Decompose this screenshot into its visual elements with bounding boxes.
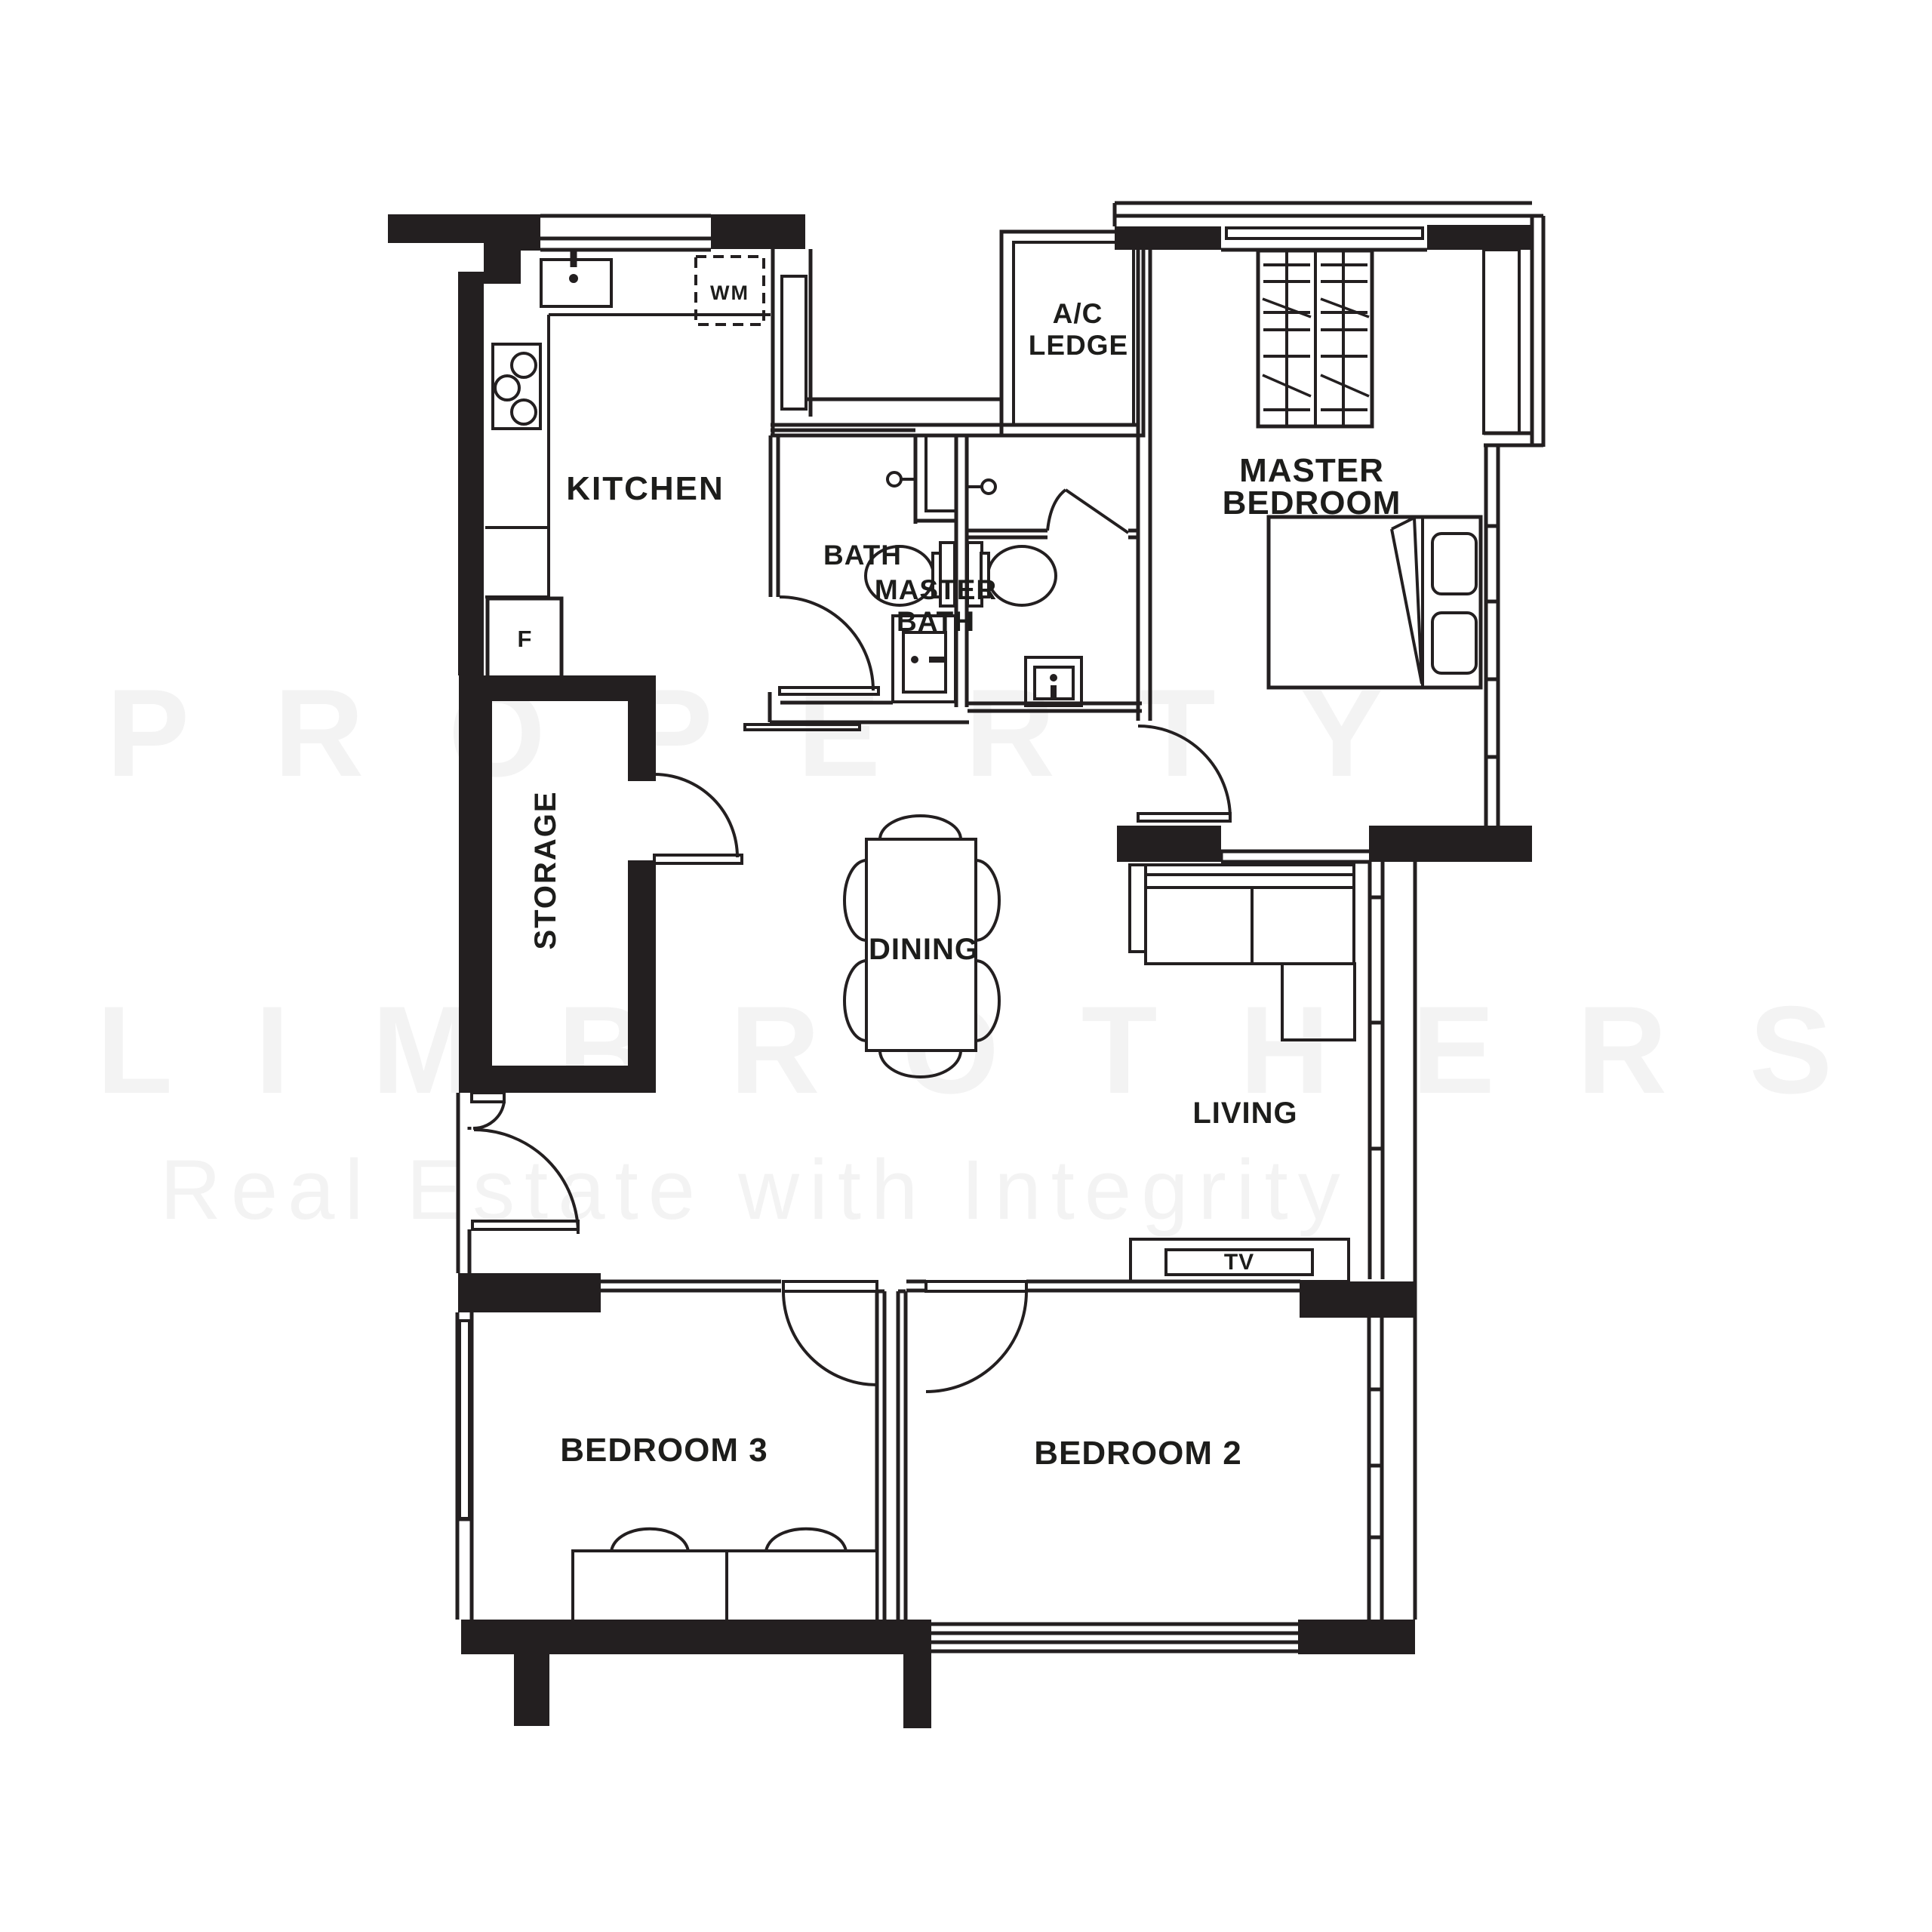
- svg-text:STORAGE: STORAGE: [529, 790, 562, 949]
- svg-text:BATH: BATH: [823, 540, 902, 571]
- svg-text:PROPERTY: PROPERTY: [106, 663, 1468, 802]
- svg-text:F: F: [518, 626, 532, 652]
- svg-text:WM: WM: [710, 281, 749, 304]
- svg-text:A/C: A/C: [1053, 298, 1103, 329]
- svg-text:TV: TV: [1224, 1250, 1254, 1275]
- svg-text:LIMBROTHERS: LIMBROTHERS: [97, 980, 1915, 1119]
- svg-text:BEDROOM: BEDROOM: [1223, 485, 1401, 521]
- svg-text:BEDROOM 3: BEDROOM 3: [560, 1432, 768, 1469]
- svg-text:DINING: DINING: [869, 933, 979, 966]
- svg-text:LIVING: LIVING: [1192, 1097, 1297, 1130]
- svg-text:MASTER: MASTER: [1239, 452, 1384, 489]
- svg-text:LEDGE: LEDGE: [1029, 330, 1128, 361]
- svg-text:MASTER: MASTER: [875, 574, 997, 605]
- svg-text:KITCHEN: KITCHEN: [566, 470, 724, 507]
- svg-text:Real Estate with Integrity: Real Estate with Integrity: [160, 1143, 1350, 1237]
- svg-text:BATH: BATH: [897, 606, 975, 637]
- svg-text:BEDROOM 2: BEDROOM 2: [1034, 1435, 1241, 1472]
